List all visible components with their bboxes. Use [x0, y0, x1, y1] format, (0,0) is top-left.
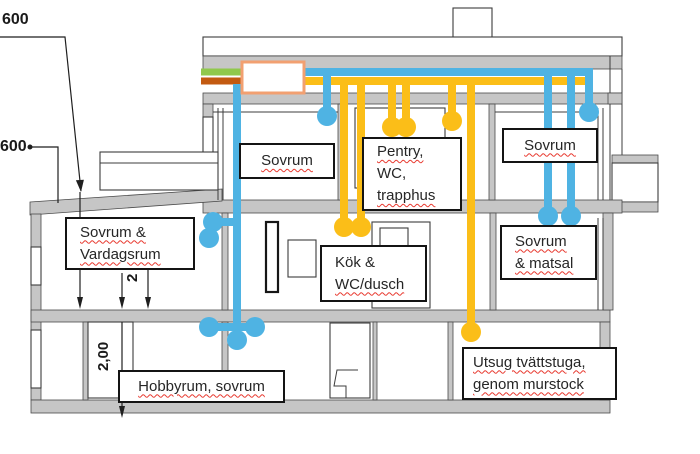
extension-roof [30, 189, 222, 215]
room-label-text: Sovrum & [80, 222, 193, 244]
left-window-floor2 [31, 247, 41, 285]
parapet [100, 152, 218, 190]
house-section-diagram: 600 600 2 2,00 Sovrum Pentry, WC, trapph… [0, 0, 700, 454]
second-floor-slab [31, 310, 610, 322]
dimension-600-left: 600 [0, 138, 27, 156]
room-label-text: WC, [377, 163, 460, 185]
roof-band [203, 37, 622, 56]
room-label-text: Sovrum [515, 231, 595, 253]
room-label-hobbyrum-sovrum: Hobbyrum, sovrum [118, 370, 285, 403]
room-label-kok-wc-dusch: Kök & WC/dusch [320, 245, 427, 302]
room-label-text: Kök & [335, 252, 425, 274]
room-label-text: Sovrum [524, 135, 576, 157]
right-bay [612, 163, 658, 202]
room-label-sovrum-upper-right: Sovrum [502, 128, 598, 163]
left-window-floor1 [31, 330, 41, 388]
room-label-sovrum-upper-left: Sovrum [239, 143, 335, 179]
room-label-sovrum-vardagsrum: Sovrum & Vardagsrum [65, 217, 195, 270]
chimney [453, 8, 492, 38]
room-label-text: trapphus [377, 185, 460, 207]
dimension-floor2-height: 2 [124, 274, 141, 282]
room-label-text: Utsug tvättstuga, [473, 352, 615, 374]
dimension-600-top: 600 [2, 11, 29, 29]
right-bay-top [612, 155, 658, 163]
room-label-text: Sovrum [261, 150, 313, 172]
room-label-text: WC/dusch [335, 274, 425, 296]
room-label-sovrum-matsal: Sovrum & matsal [500, 225, 597, 280]
room-label-text: Pentry, [377, 141, 460, 163]
bathroom-door [330, 323, 370, 398]
ventilation-unit [242, 62, 304, 93]
room-label-text: Hobbyrum, sovrum [138, 376, 265, 398]
room-label-text: genom murstock [473, 374, 615, 396]
room-label-text: & matsal [515, 253, 595, 275]
room-label-utsug-tvattstuga: Utsug tvättstuga, genom murstock [462, 347, 617, 400]
room-label-text: Vardagsrum [80, 244, 193, 266]
room-label-pentry-wc-trapphus: Pentry, WC, trapphus [362, 137, 462, 211]
door-floor2 [266, 222, 278, 292]
dimension-floor1-height: 2,00 [95, 342, 112, 371]
attic-floor-slab [203, 93, 622, 104]
